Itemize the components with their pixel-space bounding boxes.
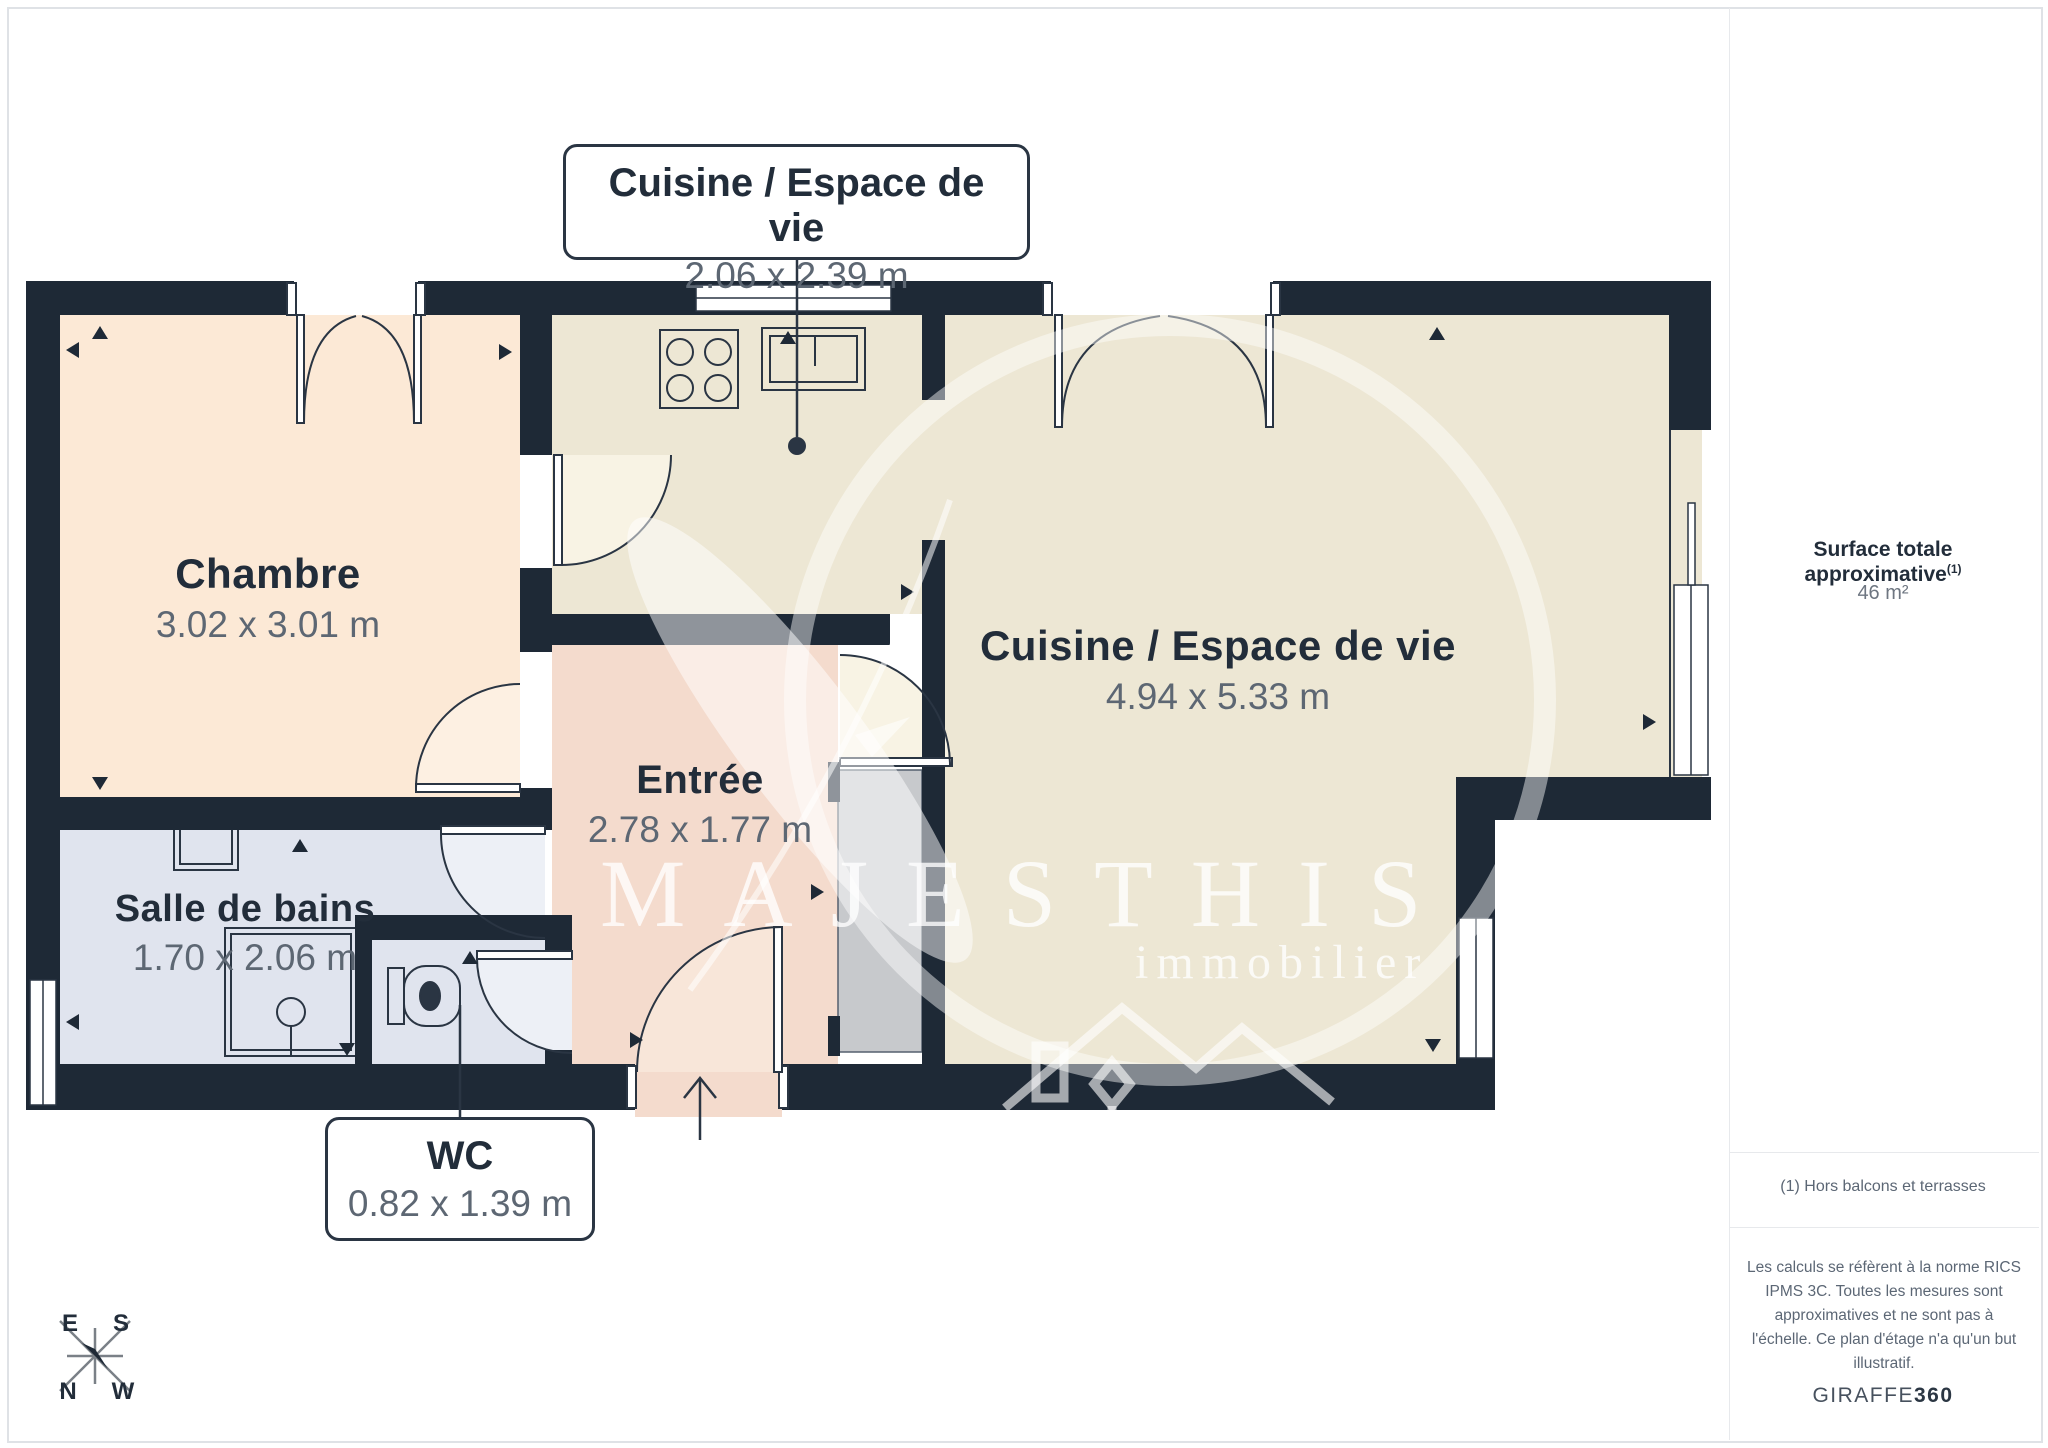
callout-kitchen-nook-title: Cuisine / Espace de vie — [576, 161, 1017, 251]
disclaimer-text: Les calculs se réfèrent à la norme RICS … — [1743, 1256, 2025, 1376]
surface-total-text: Surface totale approximative — [1804, 538, 1952, 586]
footnote: (1) Hors balcons et terrasses — [1735, 1178, 2031, 1196]
surface-total-label: Surface totale approximative(1) — [1735, 538, 2031, 587]
surface-total-superscript: (1) — [1947, 562, 1962, 576]
compass-rose — [60, 1321, 130, 1391]
sidebar-rule — [1729, 1152, 2039, 1153]
callout-kitchen-nook: Cuisine / Espace de vie 2.06 x 2.39 m — [563, 144, 1030, 260]
room-floors — [60, 315, 1702, 1117]
surface-total-value: 46 m² — [1735, 582, 2031, 605]
sidebar-rule — [1729, 1227, 2039, 1228]
callout-wc-title: WC — [338, 1134, 582, 1179]
floor-plan-page: Cuisine / Espace de vie 2.06 x 2.39 m WC… — [0, 0, 2048, 1448]
giraffe360-logo: GIRAFFE360 — [1735, 1384, 2031, 1408]
giraffe-logo-text: GIRAFFE — [1812, 1384, 1914, 1407]
bathroom-window — [30, 980, 56, 1105]
callout-wc: WC 0.82 x 1.39 m — [325, 1117, 595, 1241]
sidebar-divider — [1729, 8, 1730, 1440]
callout-wc-dims: 0.82 x 1.39 m — [338, 1183, 582, 1225]
callout-kitchen-nook-dims: 2.06 x 2.39 m — [576, 255, 1017, 297]
giraffe-logo-360: 360 — [1914, 1384, 1954, 1407]
info-sidebar: Surface totale approximative(1) 46 m² (1… — [1729, 0, 2039, 1448]
